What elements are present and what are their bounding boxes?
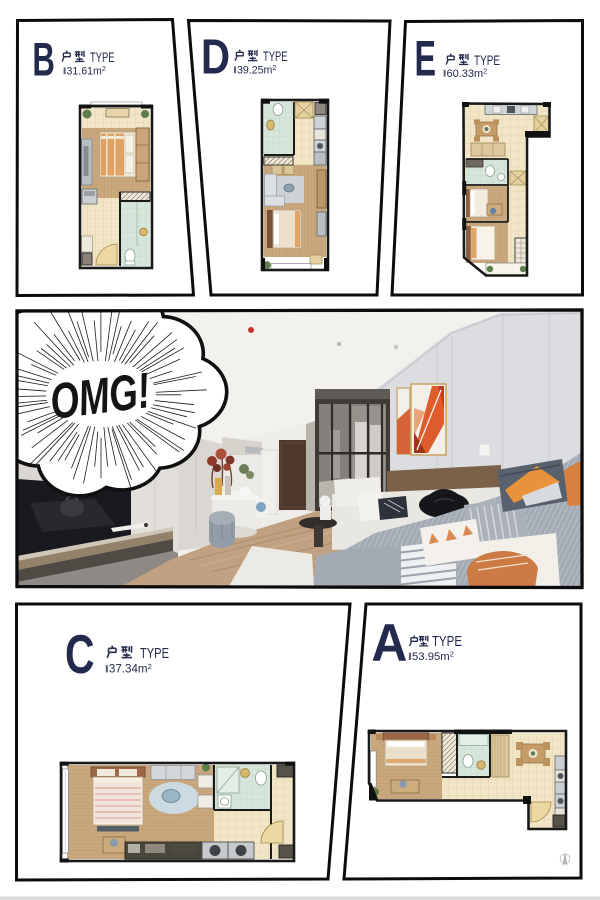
- svg-text:60.33m2: 60.33m2: [447, 67, 488, 81]
- svg-text:C: C: [65, 623, 95, 685]
- svg-text:D: D: [201, 31, 230, 85]
- svg-text:37.34m2: 37.34m2: [109, 662, 152, 676]
- svg-text:E: E: [415, 30, 437, 86]
- svg-text:B: B: [32, 33, 55, 86]
- svg-text:TYPE: TYPE: [263, 49, 288, 64]
- svg-text:53.95m2: 53.95m2: [412, 649, 454, 663]
- svg-text:TYPE: TYPE: [90, 50, 115, 65]
- svg-text:31.61m2: 31.61m2: [67, 65, 106, 77]
- svg-text:TYPE: TYPE: [432, 634, 462, 650]
- svg-text:39.25m2: 39.25m2: [237, 65, 276, 77]
- svg-text:A: A: [371, 614, 407, 673]
- svg-text:TYPE: TYPE: [140, 645, 169, 662]
